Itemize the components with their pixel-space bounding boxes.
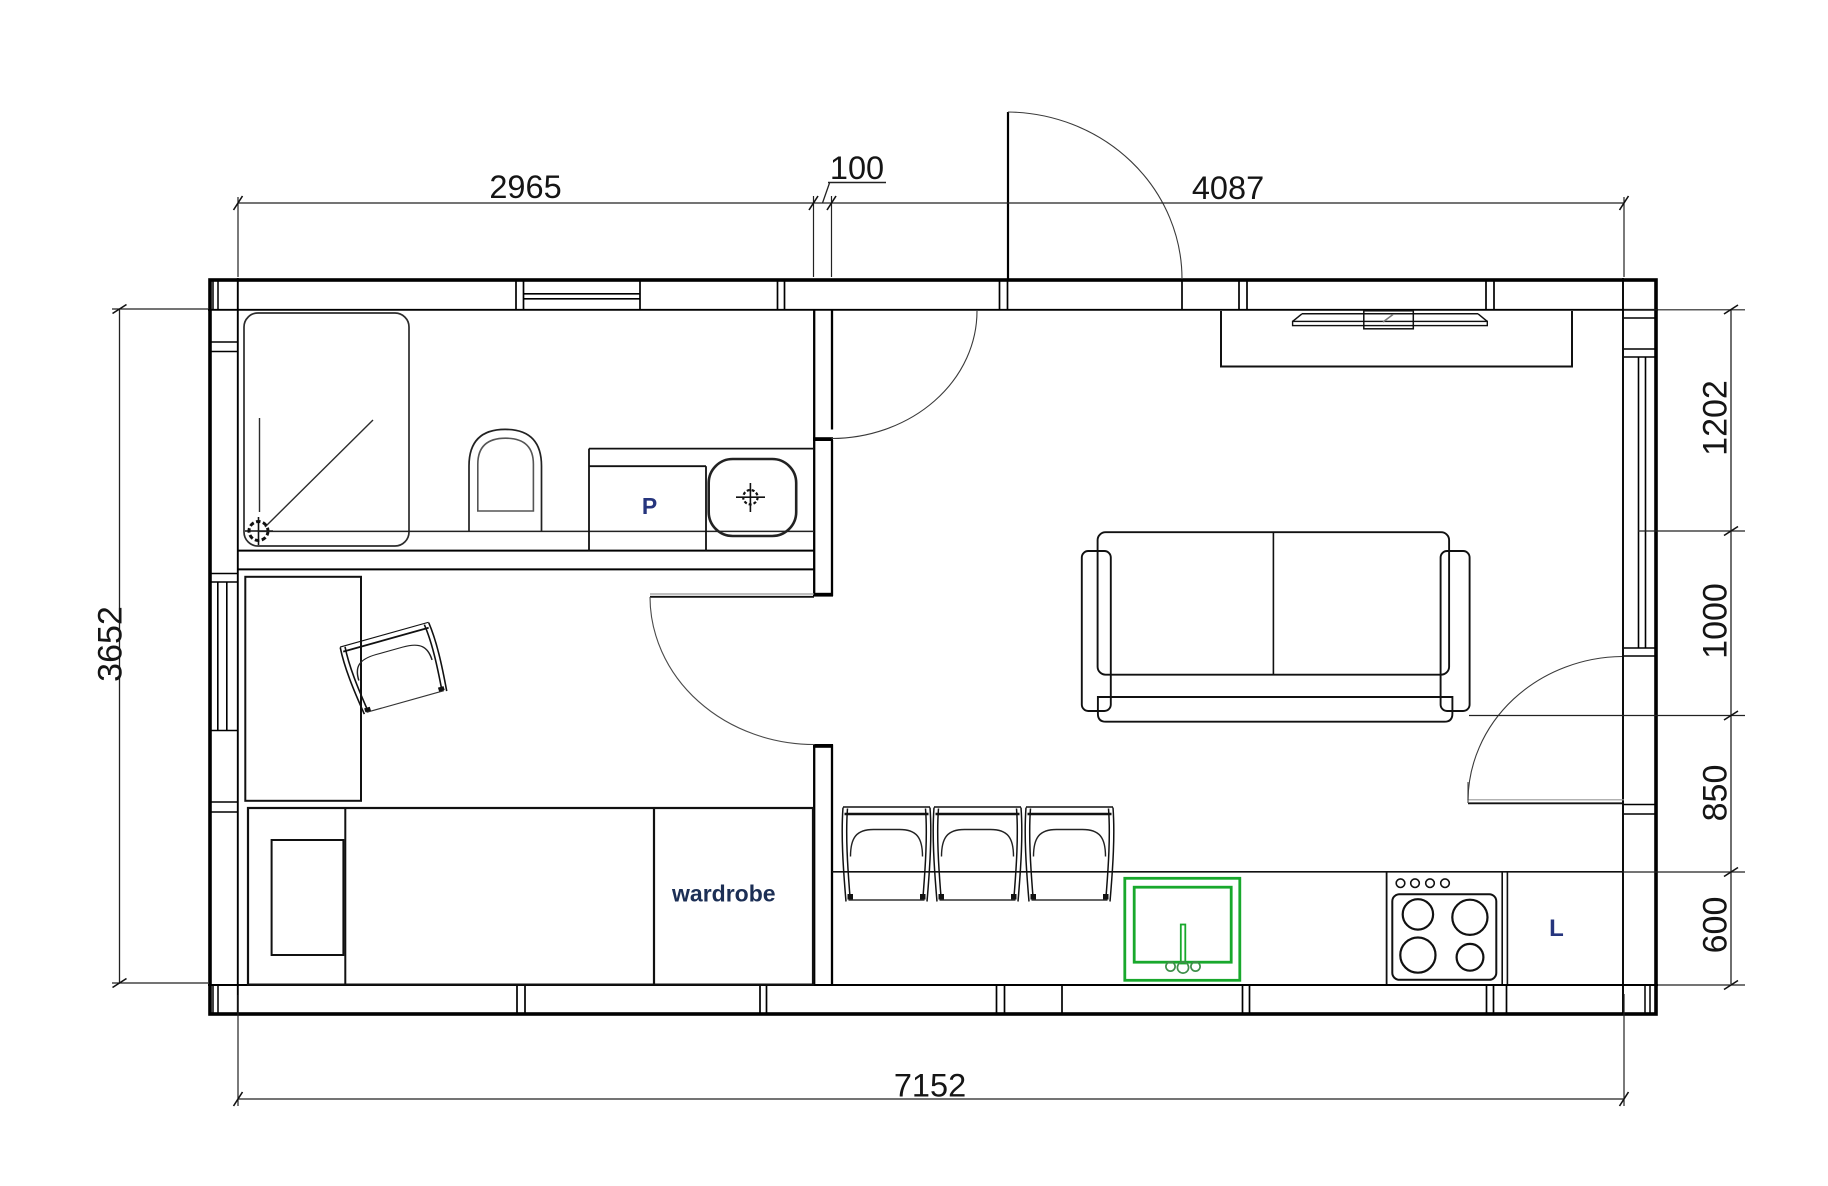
svg-text:850: 850 [1697,765,1735,822]
svg-text:wardrobe: wardrobe [671,881,776,907]
svg-text:1000: 1000 [1697,583,1735,659]
svg-text:P: P [642,493,657,519]
svg-text:4087: 4087 [1192,170,1264,206]
svg-text:600: 600 [1697,897,1735,954]
svg-text:100: 100 [830,150,884,186]
svg-text:7152: 7152 [894,1068,966,1104]
svg-text:3652: 3652 [92,606,130,682]
svg-text:1202: 1202 [1697,380,1735,456]
svg-text:L: L [1549,915,1564,942]
svg-text:2965: 2965 [489,169,561,205]
